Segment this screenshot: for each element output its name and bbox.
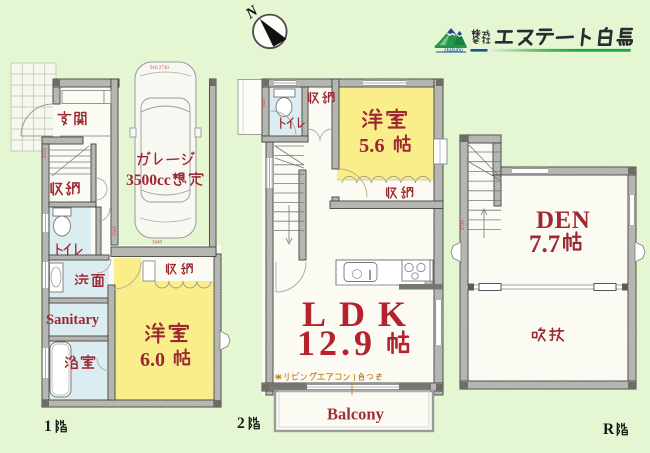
svg-text:12.9: 12.9	[297, 323, 376, 363]
svg-text:DEN: DEN	[536, 207, 590, 234]
svg-text:3500: 3500	[113, 226, 118, 237]
svg-text:6.0: 6.0	[140, 349, 165, 371]
svg-text:3500cc: 3500cc	[126, 172, 171, 189]
svg-text:2: 2	[237, 415, 245, 432]
svg-text:7.7: 7.7	[529, 231, 560, 258]
svg-text:1820: 1820	[262, 98, 267, 109]
svg-text:2550: 2550	[43, 148, 48, 159]
svg-text:Balcony: Balcony	[327, 405, 385, 424]
svg-text:910 2730: 910 2730	[150, 66, 169, 71]
svg-text:1: 1	[44, 418, 52, 435]
svg-text:5.6: 5.6	[359, 135, 385, 157]
svg-text:1: 1	[352, 374, 357, 384]
svg-text:2730: 2730	[461, 220, 466, 231]
svg-text:R: R	[603, 421, 615, 438]
svg-text:Sanitary: Sanitary	[46, 312, 100, 328]
svg-text:3640: 3640	[152, 241, 163, 246]
